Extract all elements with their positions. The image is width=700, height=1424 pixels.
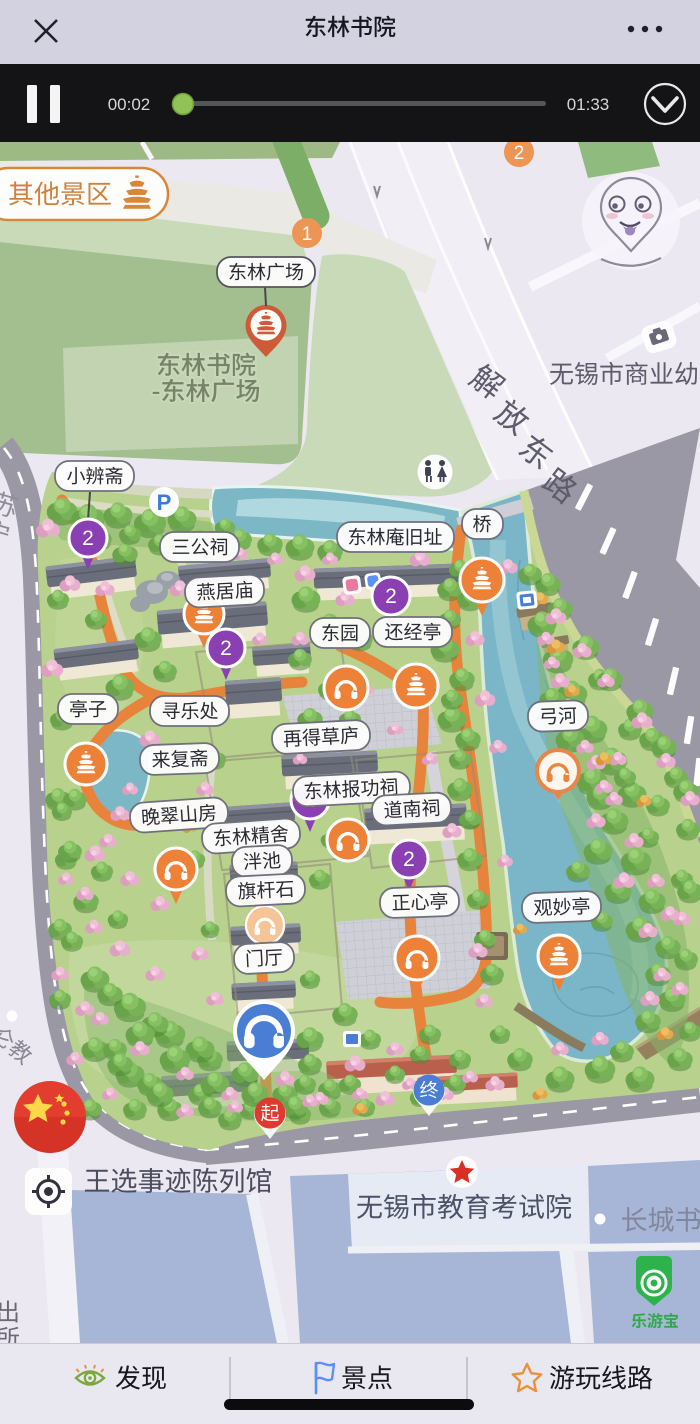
- svg-text:01:33: 01:33: [567, 95, 610, 114]
- svg-text:2: 2: [514, 143, 525, 164]
- svg-text:P: P: [157, 490, 172, 515]
- svg-text:2: 2: [385, 585, 397, 608]
- svg-text:00:02: 00:02: [108, 95, 151, 114]
- svg-text:2: 2: [82, 527, 94, 550]
- svg-text:1: 1: [302, 224, 313, 245]
- svg-text:2: 2: [403, 848, 415, 871]
- svg-text:2: 2: [220, 637, 232, 660]
